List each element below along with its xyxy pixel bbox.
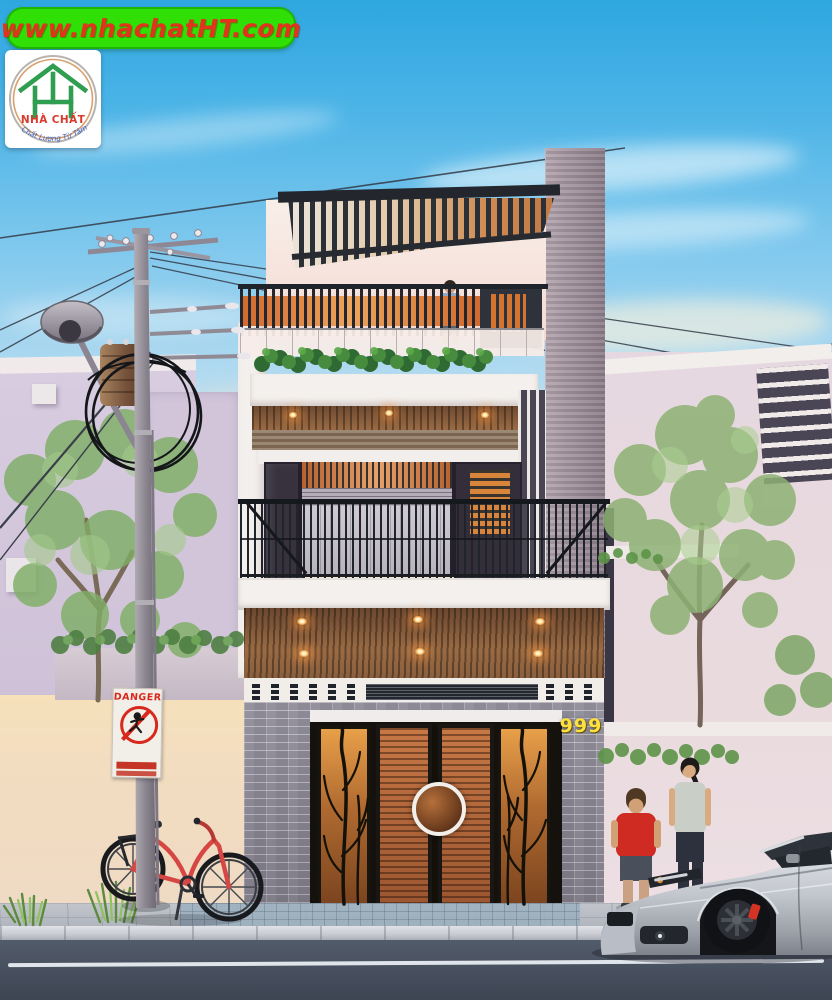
silver-suv [590,820,832,980]
watermark-text: www.nhachatHT.com [1,14,302,43]
side-arms [150,303,251,360]
house-icon [21,66,85,116]
watermark-banner: www.nhachatHT.com [6,7,296,49]
danger-sign-title: DANGER [113,692,162,704]
danger-sign: DANGER [111,688,163,779]
logo-graphic: Chất Lượng Từ Tâm [5,50,101,148]
danger-sign-caption-bar [116,762,156,770]
brand-logo: Chất Lượng Từ Tâm NHÀ CHẤT [5,50,101,148]
pole [122,228,170,912]
scene: 999 [0,0,832,1000]
logo-brand-text: NHÀ CHẤT [5,114,101,126]
danger-sign-caption-bar [116,771,156,777]
electrocuted-figure-icon [125,712,149,736]
car [592,832,832,964]
crossarms [88,230,218,258]
